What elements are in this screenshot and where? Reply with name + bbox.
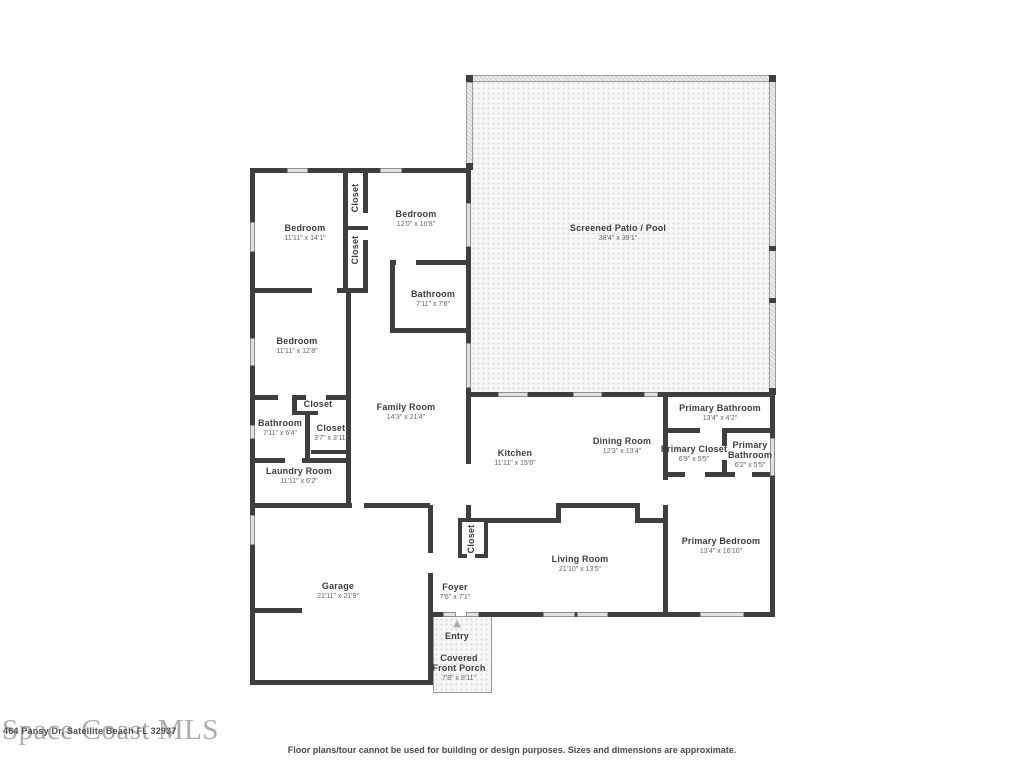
window <box>380 168 402 173</box>
wall <box>343 226 368 230</box>
entry-label: Entry <box>445 631 469 641</box>
window <box>700 612 744 617</box>
window <box>250 338 255 366</box>
room-label-bathroom-1: Bathroom 7'11" x 7'6" <box>411 289 455 309</box>
property-address: 464 Pansy Dr, Satellite Beach FL 32937 <box>3 726 177 736</box>
patio-screen-wall-top <box>466 75 776 82</box>
wall <box>722 428 770 433</box>
wall <box>770 392 775 617</box>
window <box>250 425 255 439</box>
wall <box>475 554 488 558</box>
window <box>644 392 658 397</box>
wall <box>250 395 278 400</box>
floor-plan-page: Bedroom 11'11" x 14'1" Closet Closet Bed… <box>0 0 1024 768</box>
wall <box>458 518 462 558</box>
wall <box>302 458 350 463</box>
room-label-dining-room: Dining Room 12'3" x 13'4" <box>593 436 651 456</box>
patio-corner-cap <box>769 75 776 82</box>
wall <box>663 428 700 433</box>
wall <box>479 612 492 617</box>
patio-corner-cap <box>466 75 473 82</box>
wall <box>337 288 368 293</box>
wall <box>363 240 368 292</box>
room-label-living-room: Living Room 21'10" x 13'5" <box>552 554 609 574</box>
room-label-closet-mid: Closet <box>350 236 360 265</box>
window <box>287 168 308 173</box>
wall <box>364 503 430 508</box>
room-label-bedroom-1: Bedroom 11'11" x 14'1" <box>284 223 325 243</box>
wall <box>390 260 395 333</box>
room-label-closet-top: Closet <box>350 184 360 213</box>
window <box>466 343 471 388</box>
wall <box>556 503 640 508</box>
wall <box>250 608 302 613</box>
patio-screen-door-cap <box>769 246 776 251</box>
wall <box>250 458 285 463</box>
room-label-screened-patio: Screened Patio / Pool 38'4" x 39'1" <box>570 223 666 243</box>
window <box>466 203 471 247</box>
wall <box>663 472 685 477</box>
wall <box>705 472 735 477</box>
entry-sidelight <box>466 612 479 617</box>
window <box>250 222 255 252</box>
room-label-bedroom-2: Bedroom 12'0" x 10'8" <box>396 209 437 229</box>
window <box>577 612 608 617</box>
window <box>573 392 602 397</box>
wall <box>250 503 352 508</box>
window <box>543 612 575 617</box>
entry-arrow-icon: ▲ <box>451 617 464 630</box>
room-label-primary-closet: Primary Closet 6'9" x 5'5" <box>661 444 727 464</box>
wall <box>663 392 668 480</box>
wall <box>488 518 560 523</box>
room-label-garage: Garage 21'11" x 21'9" <box>317 581 359 601</box>
room-label-closet-foyer: Closet <box>466 525 476 554</box>
room-label-family-room: Family Room 14'3" x 21'4" <box>377 402 436 422</box>
room-label-bedroom-3: Bedroom 11'11" x 12'8" <box>276 336 317 356</box>
room-label-closet-small: Closet 3'7" x 3'11" <box>314 423 348 443</box>
disclaimer-text: Floor plans/tour cannot be used for buil… <box>0 745 1024 755</box>
room-label-primary-bedroom: Primary Bedroom 13'4" x 16'10" <box>682 536 761 556</box>
patio-screen-wall-left <box>466 82 473 170</box>
patio-screen-wall-right <box>769 75 776 395</box>
room-label-foyer: Foyer 7'6" x 7'1" <box>440 582 471 602</box>
room-label-kitchen: Kitchen 11'11" x 15'6" <box>494 448 535 468</box>
room-label-primary-bathroom-2: Primary Bathroom 6'2" x 5'5" <box>724 440 776 470</box>
wall <box>250 288 312 293</box>
wall <box>390 328 471 333</box>
room-label-primary-bathroom-1: Primary Bathroom 13'4" x 4'2" <box>679 403 761 423</box>
wall <box>484 518 488 558</box>
room-label-bathroom-2: Bathroom 7'11" x 6'4" <box>258 418 302 438</box>
wall <box>663 505 668 617</box>
window <box>498 392 528 397</box>
wall <box>433 612 443 617</box>
wall <box>428 505 433 553</box>
room-label-covered-front-porch: Covered Front Porch 7'8" x 8'11" <box>428 653 490 683</box>
window <box>250 515 255 545</box>
wall <box>363 168 368 213</box>
wall <box>250 680 433 685</box>
wall <box>458 554 467 558</box>
wall <box>250 168 471 173</box>
patio-screen-door-cap <box>769 298 776 303</box>
wall <box>305 413 310 460</box>
room-label-closet-hall: Closet <box>304 399 333 409</box>
wall <box>311 450 348 454</box>
wall <box>416 260 471 265</box>
room-label-laundry: Laundry Room 11'11" x 6'2" <box>266 466 332 486</box>
